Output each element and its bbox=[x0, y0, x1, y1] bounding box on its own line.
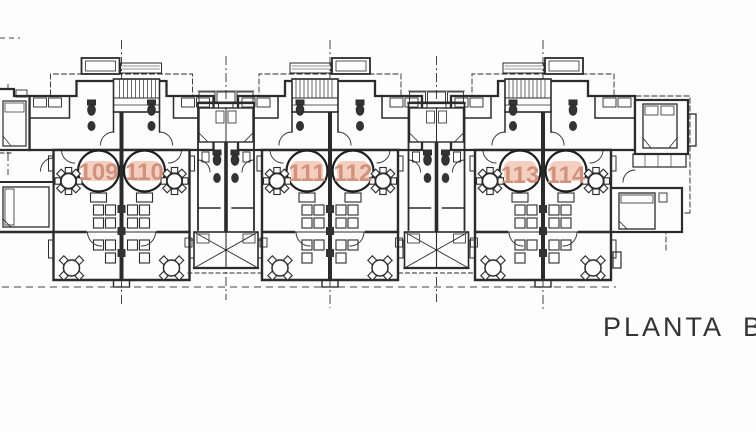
unit-label-114: 114 bbox=[547, 162, 586, 189]
middle-section-2 bbox=[396, 91, 478, 273]
unit-label-110: 110 bbox=[125, 159, 164, 186]
floor-plan-canvas: 109 110 111 112 113 114 bbox=[0, 0, 756, 432]
unit-label-112: 112 bbox=[334, 160, 373, 187]
plan-title: PLANTA BA bbox=[603, 312, 756, 343]
unit-label-113: 113 bbox=[501, 162, 540, 189]
unit-label-111: 111 bbox=[288, 160, 325, 187]
unit-label-109: 109 bbox=[78, 159, 118, 186]
floor-plan-page: 109 110 111 112 113 114 PLANTA BA bbox=[0, 0, 756, 432]
middle-section-1 bbox=[185, 91, 267, 273]
